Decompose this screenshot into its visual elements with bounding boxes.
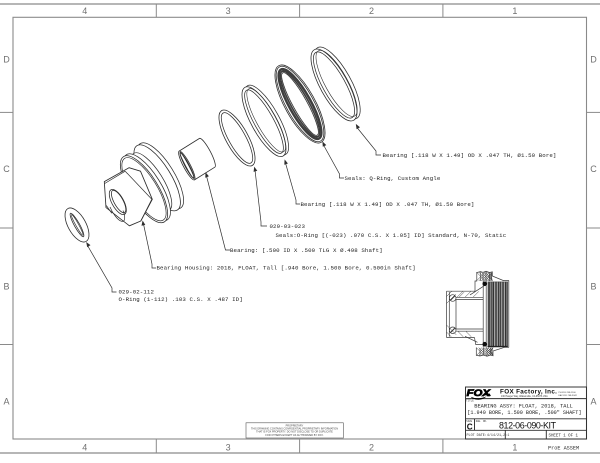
- svg-text:4: 4: [82, 443, 87, 453]
- svg-text:A: A: [590, 396, 596, 406]
- svg-text:130 Hanger Way, Watsonville, C: 130 Hanger Way, Watsonville, CA 95076 US…: [501, 395, 548, 398]
- svg-text:TITLE: TITLE: [466, 400, 474, 403]
- svg-text:B: B: [590, 281, 596, 291]
- svg-text:[1.940 BORE, 1.500 BORE, .500": [1.940 BORE, 1.500 BORE, .500" SHAFT]: [467, 410, 581, 416]
- svg-text:Seals:O-Ring [(-023) .070 C.S.: Seals:O-Ring [(-023) .070 C.S. X 1.05] I…: [276, 232, 507, 239]
- svg-text:ProE ASSEM: ProE ASSEM: [548, 446, 579, 452]
- svg-text:Bearing [.118 W X 1.49] OD X .: Bearing [.118 W X 1.49] OD X .047 TH, Ø1…: [383, 152, 557, 159]
- svg-text:C: C: [3, 164, 10, 174]
- svg-text:C: C: [590, 164, 597, 174]
- svg-text:D: D: [3, 54, 10, 64]
- svg-text:PLOT DATE:4/14/21,2:1: PLOT DATE:4/14/21,2:1: [467, 433, 510, 438]
- svg-text:FAX 831-768-9342: FAX 831-768-9342: [559, 394, 578, 397]
- svg-text:3: 3: [226, 443, 231, 453]
- svg-text:Bearing [.118 W X 1.49] OD X .: Bearing [.118 W X 1.49] OD X .047 TH, Ø1…: [301, 201, 475, 208]
- svg-text:BEARING ASSY: FLOAT, 2018, TAL: BEARING ASSY: FLOAT, 2018, TALL: [474, 403, 573, 409]
- svg-text:FOR OTHERS EXCEPT AS AUTHORIZE: FOR OTHERS EXCEPT AS AUTHORIZED BY FOX.: [265, 434, 324, 437]
- svg-text:1: 1: [512, 443, 517, 453]
- svg-text:O-Ring (1-112) .103 C.S. X .48: O-Ring (1-112) .103 C.S. X .487 ID]: [119, 296, 243, 303]
- svg-text:PH 831-768-1100: PH 831-768-1100: [559, 392, 577, 394]
- svg-text:Seals: Q-Ring, Custom Angle: Seals: Q-Ring, Custom Angle: [345, 175, 441, 182]
- svg-text:812-06-090-KIT: 812-06-090-KIT: [499, 421, 557, 431]
- svg-text:2: 2: [369, 443, 374, 453]
- svg-text:FOX Factory, Inc.: FOX Factory, Inc.: [500, 389, 557, 396]
- svg-text:029-03-023: 029-03-023: [270, 223, 306, 230]
- svg-text:Bearing Housing: 2018, FLOAT,: Bearing Housing: 2018, FLOAT, Tall [.940…: [157, 264, 416, 271]
- svg-text:B: B: [3, 281, 9, 291]
- svg-text:Bearing: [.500 ID X .500 TLG X: Bearing: [.500 ID X .500 TLG X Ø.498 Sha…: [230, 247, 383, 254]
- svg-text:SHEET 1 OF 1: SHEET 1 OF 1: [549, 434, 579, 438]
- svg-text:DWG. NO.: DWG. NO.: [476, 420, 487, 423]
- svg-text:FOX: FOX: [467, 388, 491, 399]
- svg-text:2: 2: [369, 6, 374, 16]
- svg-text:A: A: [3, 396, 9, 406]
- svg-text:4: 4: [82, 6, 87, 16]
- svg-text:3: 3: [226, 6, 231, 16]
- svg-text:029-02-112: 029-02-112: [119, 289, 155, 296]
- svg-text:D: D: [590, 54, 597, 64]
- svg-text:1: 1: [512, 6, 517, 16]
- svg-text:C: C: [467, 422, 473, 431]
